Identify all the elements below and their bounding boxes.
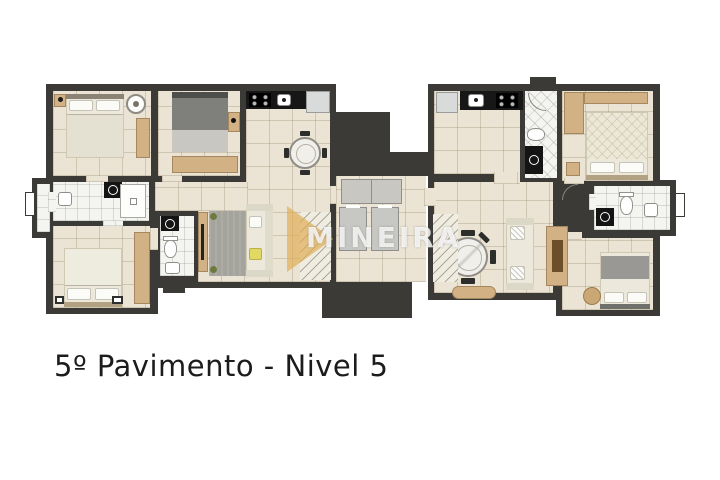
sofa-back: [265, 211, 273, 270]
bed-5-blanket: [601, 256, 649, 279]
bed-1-duvet: [67, 114, 123, 157]
elevator-machine-room: [341, 179, 402, 204]
dining-chair: [490, 250, 496, 264]
right-kitchen-hall-opening: [494, 172, 520, 184]
wardrobe-top-right: [564, 92, 584, 134]
yellow-pillow: [249, 248, 262, 260]
bed-5-headboard: [600, 304, 650, 309]
bed-2-sheet: [172, 130, 228, 152]
dining-chair: [300, 170, 310, 175]
dining-chair: [461, 278, 475, 284]
left-fridge: [306, 91, 330, 113]
bed-4-pillow: [590, 162, 615, 173]
bed-5-pillow: [604, 292, 624, 303]
right-entrance-opening: [424, 188, 436, 206]
page-title: 5º Pavimento - Nivel 5: [54, 349, 388, 383]
sofa-pillow: [510, 226, 525, 240]
left-bath-bump-opening: [48, 192, 56, 212]
dining-chair: [300, 131, 310, 136]
left-dining-table: [289, 137, 321, 169]
right-window-marker: [675, 193, 685, 217]
bed-5-pillow: [627, 292, 647, 303]
bathroom-sink-icon: [165, 262, 180, 274]
tv-icon: [201, 224, 204, 260]
lamp-icon: [58, 97, 63, 102]
nightstand: [566, 162, 580, 176]
toilet-tank: [163, 236, 178, 241]
cooktop-icon: [249, 93, 271, 107]
toilet-icon: [164, 240, 177, 258]
lamp-icon: [231, 118, 236, 123]
sofa-armrest: [246, 204, 273, 211]
shower-drain-icon: [130, 198, 137, 205]
right-bedroom-top-door-opening: [564, 178, 584, 184]
bed-4-headboard: [586, 175, 648, 180]
right-bathroom-2-door-opening: [589, 194, 596, 210]
ceiling-fan-icon: [126, 94, 146, 114]
wardrobe-2: [172, 156, 238, 173]
sofa-armrest: [246, 270, 273, 277]
toilet-icon: [620, 196, 633, 215]
bathroom-sink-icon: [527, 128, 545, 141]
plant-icon: [210, 266, 217, 273]
dining-chair: [461, 230, 475, 236]
left-hall-floor: [155, 182, 248, 211]
bedroom-3-door-opening: [150, 228, 158, 250]
core-shaft-upper: [333, 112, 390, 152]
dining-chair: [284, 148, 289, 158]
sofa-pillow: [249, 216, 262, 228]
bathroom-1-door-opening: [103, 221, 123, 226]
dining-chair: [322, 148, 327, 158]
bed-4-duvet: [587, 113, 647, 159]
tv-icon: [552, 240, 563, 272]
kitchen-sink-drain: [474, 98, 478, 102]
sofa-armrest: [506, 218, 534, 225]
washing-machine-icon: [596, 208, 614, 226]
wardrobe-1: [136, 118, 150, 158]
bed-4-pillow: [619, 162, 644, 173]
wardrobe-top-right-strip: [584, 92, 648, 104]
bed-1-headboard: [66, 94, 124, 99]
right-fridge: [436, 92, 458, 113]
bed-3-pillow: [67, 288, 91, 300]
bed-3-duvet: [65, 249, 121, 286]
core-shaft-band: [333, 152, 428, 176]
washing-machine-icon: [525, 146, 543, 174]
elevator-door-gap: [378, 205, 392, 208]
wall-fixture-icon: [112, 296, 123, 304]
shower-fixture-icon: [161, 216, 179, 231]
bed-2-headboard: [172, 92, 228, 98]
elevator-door-gap: [346, 205, 360, 208]
wardrobe-3: [134, 232, 150, 304]
plant-icon: [210, 213, 217, 220]
bathroom-sink-icon: [58, 192, 72, 206]
dining-bench: [452, 286, 496, 299]
watermark-text: MINEIRA: [306, 221, 462, 254]
pouf-icon: [583, 287, 601, 305]
bed-1-pillow: [96, 100, 120, 111]
core-shaft-lower: [322, 282, 412, 318]
bed-1-pillow: [69, 100, 93, 111]
sofa-armrest: [506, 283, 534, 290]
left-bath-door-step: [163, 288, 185, 293]
sofa-pillow: [510, 266, 525, 280]
cooktop-icon: [496, 93, 518, 108]
kitchen-sink-drain: [282, 98, 286, 102]
right-roof-vent: [530, 77, 556, 87]
left-window-marker: [25, 192, 35, 216]
bathroom-sink-icon: [644, 203, 658, 217]
bedroom-2-door-opening: [162, 176, 182, 182]
wall-fixture-icon: [55, 296, 64, 304]
toilet-tank: [619, 192, 634, 197]
floor-plan-page: MINEIRA 5º Pavimento - Nivel 5: [0, 0, 720, 480]
